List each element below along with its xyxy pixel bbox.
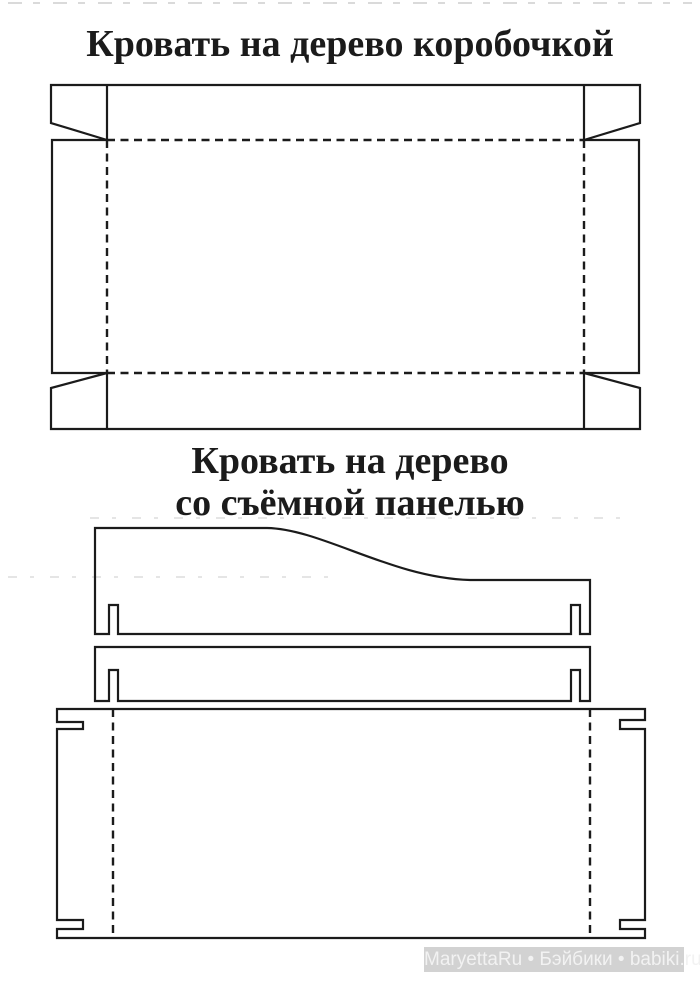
base-panel-outline <box>57 709 645 938</box>
rail-strip-outline <box>95 647 590 701</box>
box-net-corner-cut-lines <box>107 85 584 429</box>
headboard-panel-outline <box>95 528 590 634</box>
box-net-fold-lines <box>107 140 584 373</box>
pattern-line-art <box>0 0 700 991</box>
base-panel-fold-lines <box>113 709 590 938</box>
box-net-outline <box>51 85 640 429</box>
watermark-badge: MaryettaRu • Бэйбики • babiki.ru <box>424 947 684 972</box>
scanned-pattern-page: Кровать на дерево коробочкой Кровать на … <box>0 0 700 991</box>
